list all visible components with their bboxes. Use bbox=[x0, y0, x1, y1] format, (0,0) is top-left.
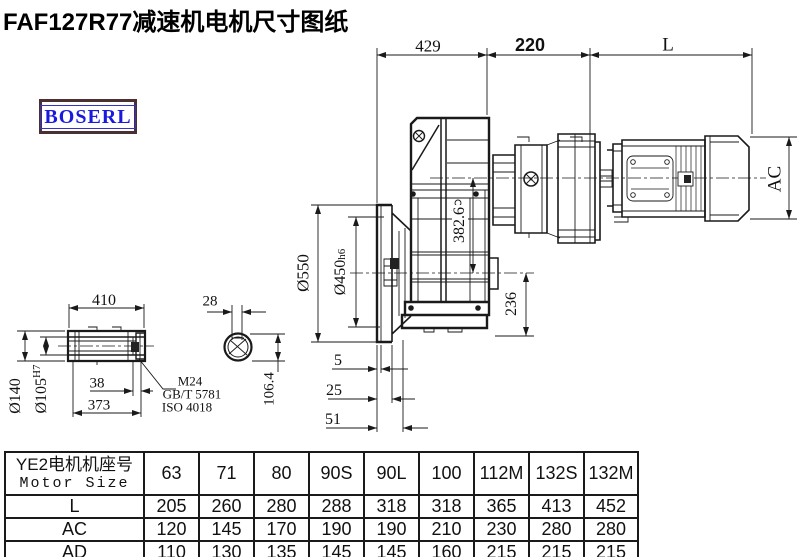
cell: 452 bbox=[584, 495, 638, 518]
cell: 170 bbox=[254, 518, 309, 541]
dim-L-label: L bbox=[662, 36, 674, 55]
table-row-L: L 205 260 280 288 318 318 365 413 452 bbox=[5, 495, 638, 518]
output-flange bbox=[377, 205, 411, 342]
dim-51-label: 51 bbox=[325, 412, 341, 428]
table-row-AC: AC 120 145 170 190 190 210 230 280 280 bbox=[5, 518, 638, 541]
table-header-cell: YE2电机机座号 Motor Size bbox=[5, 452, 144, 495]
dim-550-label: Ø550 bbox=[295, 254, 312, 292]
cell: 215 bbox=[474, 541, 529, 557]
cell: 280 bbox=[529, 518, 584, 541]
cell: 145 bbox=[199, 518, 254, 541]
dim-410-label: 410 bbox=[92, 293, 116, 309]
cell: 215 bbox=[584, 541, 638, 557]
fan-cover bbox=[705, 136, 749, 221]
brand-logo-text: BOSERL bbox=[44, 106, 131, 128]
gearbox-housing bbox=[402, 118, 498, 332]
row-label-AD: AD bbox=[5, 541, 144, 557]
cell: 413 bbox=[529, 495, 584, 518]
dim-AC-label: AC bbox=[766, 166, 785, 192]
table-header-row: YE2电机机座号 Motor Size 63 71 80 90S 90L 100… bbox=[5, 452, 638, 495]
cell: 160 bbox=[419, 541, 474, 557]
dim-28-label: 28 bbox=[203, 295, 218, 310]
col-132M: 132M bbox=[584, 452, 638, 495]
col-112M: 112M bbox=[474, 452, 529, 495]
dim-5-label: 5 bbox=[334, 353, 342, 369]
col-71: 71 bbox=[199, 452, 254, 495]
col-132S: 132S bbox=[529, 452, 584, 495]
dim-236-label: 236 bbox=[504, 292, 520, 316]
row-label-L: L bbox=[5, 495, 144, 518]
dim-220-label: 220 bbox=[515, 36, 545, 54]
drawing-page: FAF127R77减速机电机尺寸图纸 BOSERL 429 220 L AC Ø… bbox=[0, 0, 800, 557]
col-90S: 90S bbox=[309, 452, 364, 495]
col-90L: 90L bbox=[364, 452, 419, 495]
shaft-end-bolt bbox=[131, 342, 139, 352]
dim-105-label: Ø105H7 bbox=[32, 364, 50, 413]
dim-429-label: 429 bbox=[415, 38, 441, 55]
leader-iso-label: ISO 4018 bbox=[162, 401, 212, 414]
shaft-detail-view bbox=[68, 327, 176, 389]
cell: 130 bbox=[199, 541, 254, 557]
cell: 318 bbox=[419, 495, 474, 518]
page-title: FAF127R77减速机电机尺寸图纸 bbox=[3, 2, 348, 37]
cell: 205 bbox=[144, 495, 199, 518]
table-row-AD: AD 110 130 135 145 145 160 215 215 215 bbox=[5, 541, 638, 557]
motor-size-table: YE2电机机座号 Motor Size 63 71 80 90S 90L 100… bbox=[4, 451, 639, 557]
brand-logo: BOSERL bbox=[39, 99, 137, 134]
cell: 135 bbox=[254, 541, 309, 557]
flange-keyway-section bbox=[390, 258, 399, 269]
dim-106-label: 106.4 bbox=[263, 372, 278, 406]
cell: 190 bbox=[364, 518, 419, 541]
cell: 215 bbox=[529, 541, 584, 557]
cell: 120 bbox=[144, 518, 199, 541]
cell: 230 bbox=[474, 518, 529, 541]
motor bbox=[607, 136, 749, 222]
cell: 318 bbox=[364, 495, 419, 518]
cell: 260 bbox=[199, 495, 254, 518]
cell: 210 bbox=[419, 518, 474, 541]
cell: 280 bbox=[584, 518, 638, 541]
cell: 280 bbox=[254, 495, 309, 518]
row-label-AC: AC bbox=[5, 518, 144, 541]
motor-adapter bbox=[493, 134, 612, 243]
dimension-arrows bbox=[22, 52, 792, 431]
dim-382-label: 382.6 bbox=[452, 205, 468, 245]
shaft-section-view bbox=[225, 334, 252, 361]
dim-450-label: Ø450h6 bbox=[333, 249, 349, 296]
dim-38-label: 38 bbox=[90, 377, 105, 392]
dim-140-label: Ø140 bbox=[8, 378, 24, 414]
dim-25-label: 25 bbox=[326, 383, 342, 399]
cell: 110 bbox=[144, 541, 199, 557]
cell: 365 bbox=[474, 495, 529, 518]
col-63: 63 bbox=[144, 452, 199, 495]
col-100: 100 bbox=[419, 452, 474, 495]
col-80: 80 bbox=[254, 452, 309, 495]
cell: 145 bbox=[364, 541, 419, 557]
cell: 145 bbox=[309, 541, 364, 557]
cell: 190 bbox=[309, 518, 364, 541]
motor-frame bbox=[627, 156, 673, 201]
cell: 288 bbox=[309, 495, 364, 518]
dim-373-label: 373 bbox=[88, 399, 111, 414]
